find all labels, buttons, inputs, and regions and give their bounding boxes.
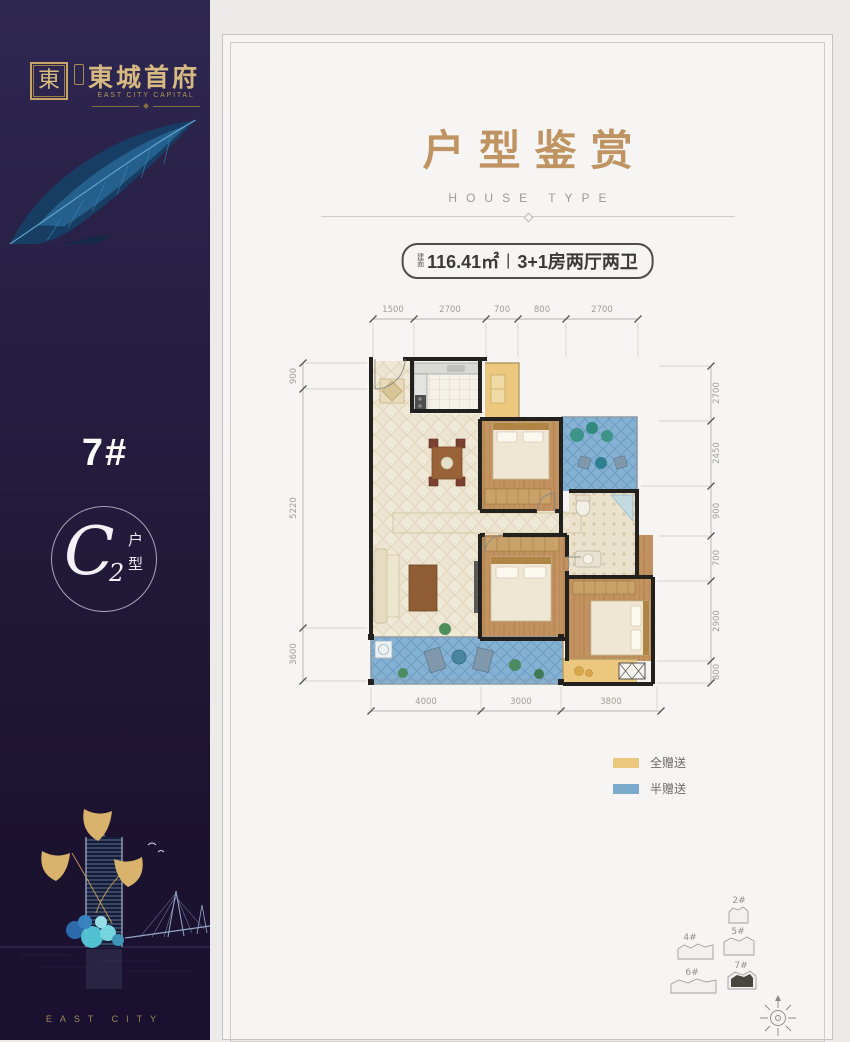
unit-type-label: 户 型 — [128, 529, 143, 574]
floor-plan: 1500 2700 700 800 2700 900 5220 3600 270… — [279, 299, 734, 734]
birds — [148, 843, 164, 852]
dim-label: 2700 — [439, 305, 461, 315]
dim-label: 700 — [712, 550, 722, 566]
tower — [86, 825, 122, 989]
unit-letter: C — [64, 507, 115, 596]
dim-label: 2900 — [712, 610, 722, 632]
dim-label: 900 — [712, 503, 722, 519]
sitemap-building-6 — [671, 979, 716, 993]
unit-number: 2 — [109, 559, 124, 587]
legend-label: 全赠送 — [650, 754, 686, 771]
window-hatch — [619, 663, 645, 679]
legend-swatch-half-gift — [613, 784, 639, 794]
badge-area: 116.41㎡ — [427, 248, 499, 274]
dim-label: 700 — [494, 305, 510, 315]
site-map: 2# 4# 5# 6# 7# — [653, 887, 833, 1039]
sitemap-label: 4# — [683, 933, 696, 943]
main-card: 户型鉴赏 HOUSE TYPE 建面 116.41㎡ | 3+1房两厅两卫 — [222, 34, 833, 1040]
compass-icon — [760, 995, 796, 1036]
dim-label: 900 — [289, 368, 299, 384]
legend-swatch-full-gift — [613, 758, 639, 768]
sitemap-label: 6# — [685, 968, 698, 978]
dim-label: 1500 — [382, 305, 404, 315]
sitemap-building-2 — [729, 907, 748, 923]
legend-row-full: 全赠送 — [613, 754, 686, 771]
sidebar: 東 東城首府 EAST CITY CAPITAL 7# C 2 户 型 — [0, 0, 210, 1040]
badge-layout: 3+1房两厅两卫 — [517, 248, 638, 274]
dim-label: 800 — [712, 664, 722, 680]
dim-label: 4000 — [415, 697, 437, 707]
badge-separator: | — [506, 252, 510, 270]
sitemap-building-5 — [724, 937, 754, 955]
dim-label: 800 — [534, 305, 550, 315]
seal-side-mark — [74, 64, 84, 85]
dim-labels-right: 2700 2450 900 700 2900 800 — [712, 382, 722, 680]
dim-label: 2450 — [712, 442, 722, 464]
block-number: 7# — [0, 432, 210, 475]
page-subtitle: HOUSE TYPE — [223, 191, 832, 205]
balcony-top-floor — [561, 417, 637, 491]
building-illustration — [0, 795, 210, 1020]
feather-graphic — [0, 86, 210, 244]
sitemap-building-4 — [678, 944, 713, 959]
dim-label: 3600 — [289, 643, 299, 665]
title-divider — [321, 216, 735, 217]
balcony-bottom-floor — [371, 637, 563, 684]
page: 東 東城首府 EAST CITY CAPITAL 7# C 2 户 型 — [0, 0, 850, 1040]
unit-badge: C 2 户 型 — [51, 506, 157, 612]
badge-prefix: 建面 — [417, 254, 424, 269]
sitemap-label: 5# — [731, 927, 744, 937]
dim-label: 3000 — [510, 697, 532, 707]
dim-label: 5220 — [289, 497, 299, 519]
legend-row-half: 半赠送 — [613, 780, 686, 797]
legend-label: 半赠送 — [650, 780, 686, 797]
dim-labels-bottom: 4000 3000 3800 — [415, 697, 622, 707]
area-badge: 建面 116.41㎡ | 3+1房两厅两卫 — [401, 243, 654, 279]
dim-label: 2700 — [591, 305, 613, 315]
divider-diamond-icon — [524, 213, 534, 223]
dim-label: 3800 — [600, 697, 622, 707]
sitemap-label: 2# — [732, 896, 745, 906]
dim-labels-left: 900 5220 3600 — [289, 368, 299, 665]
dim-labels-top: 1500 2700 700 800 2700 — [382, 305, 613, 315]
sidebar-footer-text: EAST CITY — [0, 1014, 210, 1024]
bridge — [125, 891, 210, 938]
legend: 全赠送 半赠送 — [613, 754, 686, 797]
dim-label: 2700 — [712, 382, 722, 404]
sitemap-label: 7# — [734, 961, 747, 971]
page-title: 户型鉴赏 — [223, 117, 832, 178]
